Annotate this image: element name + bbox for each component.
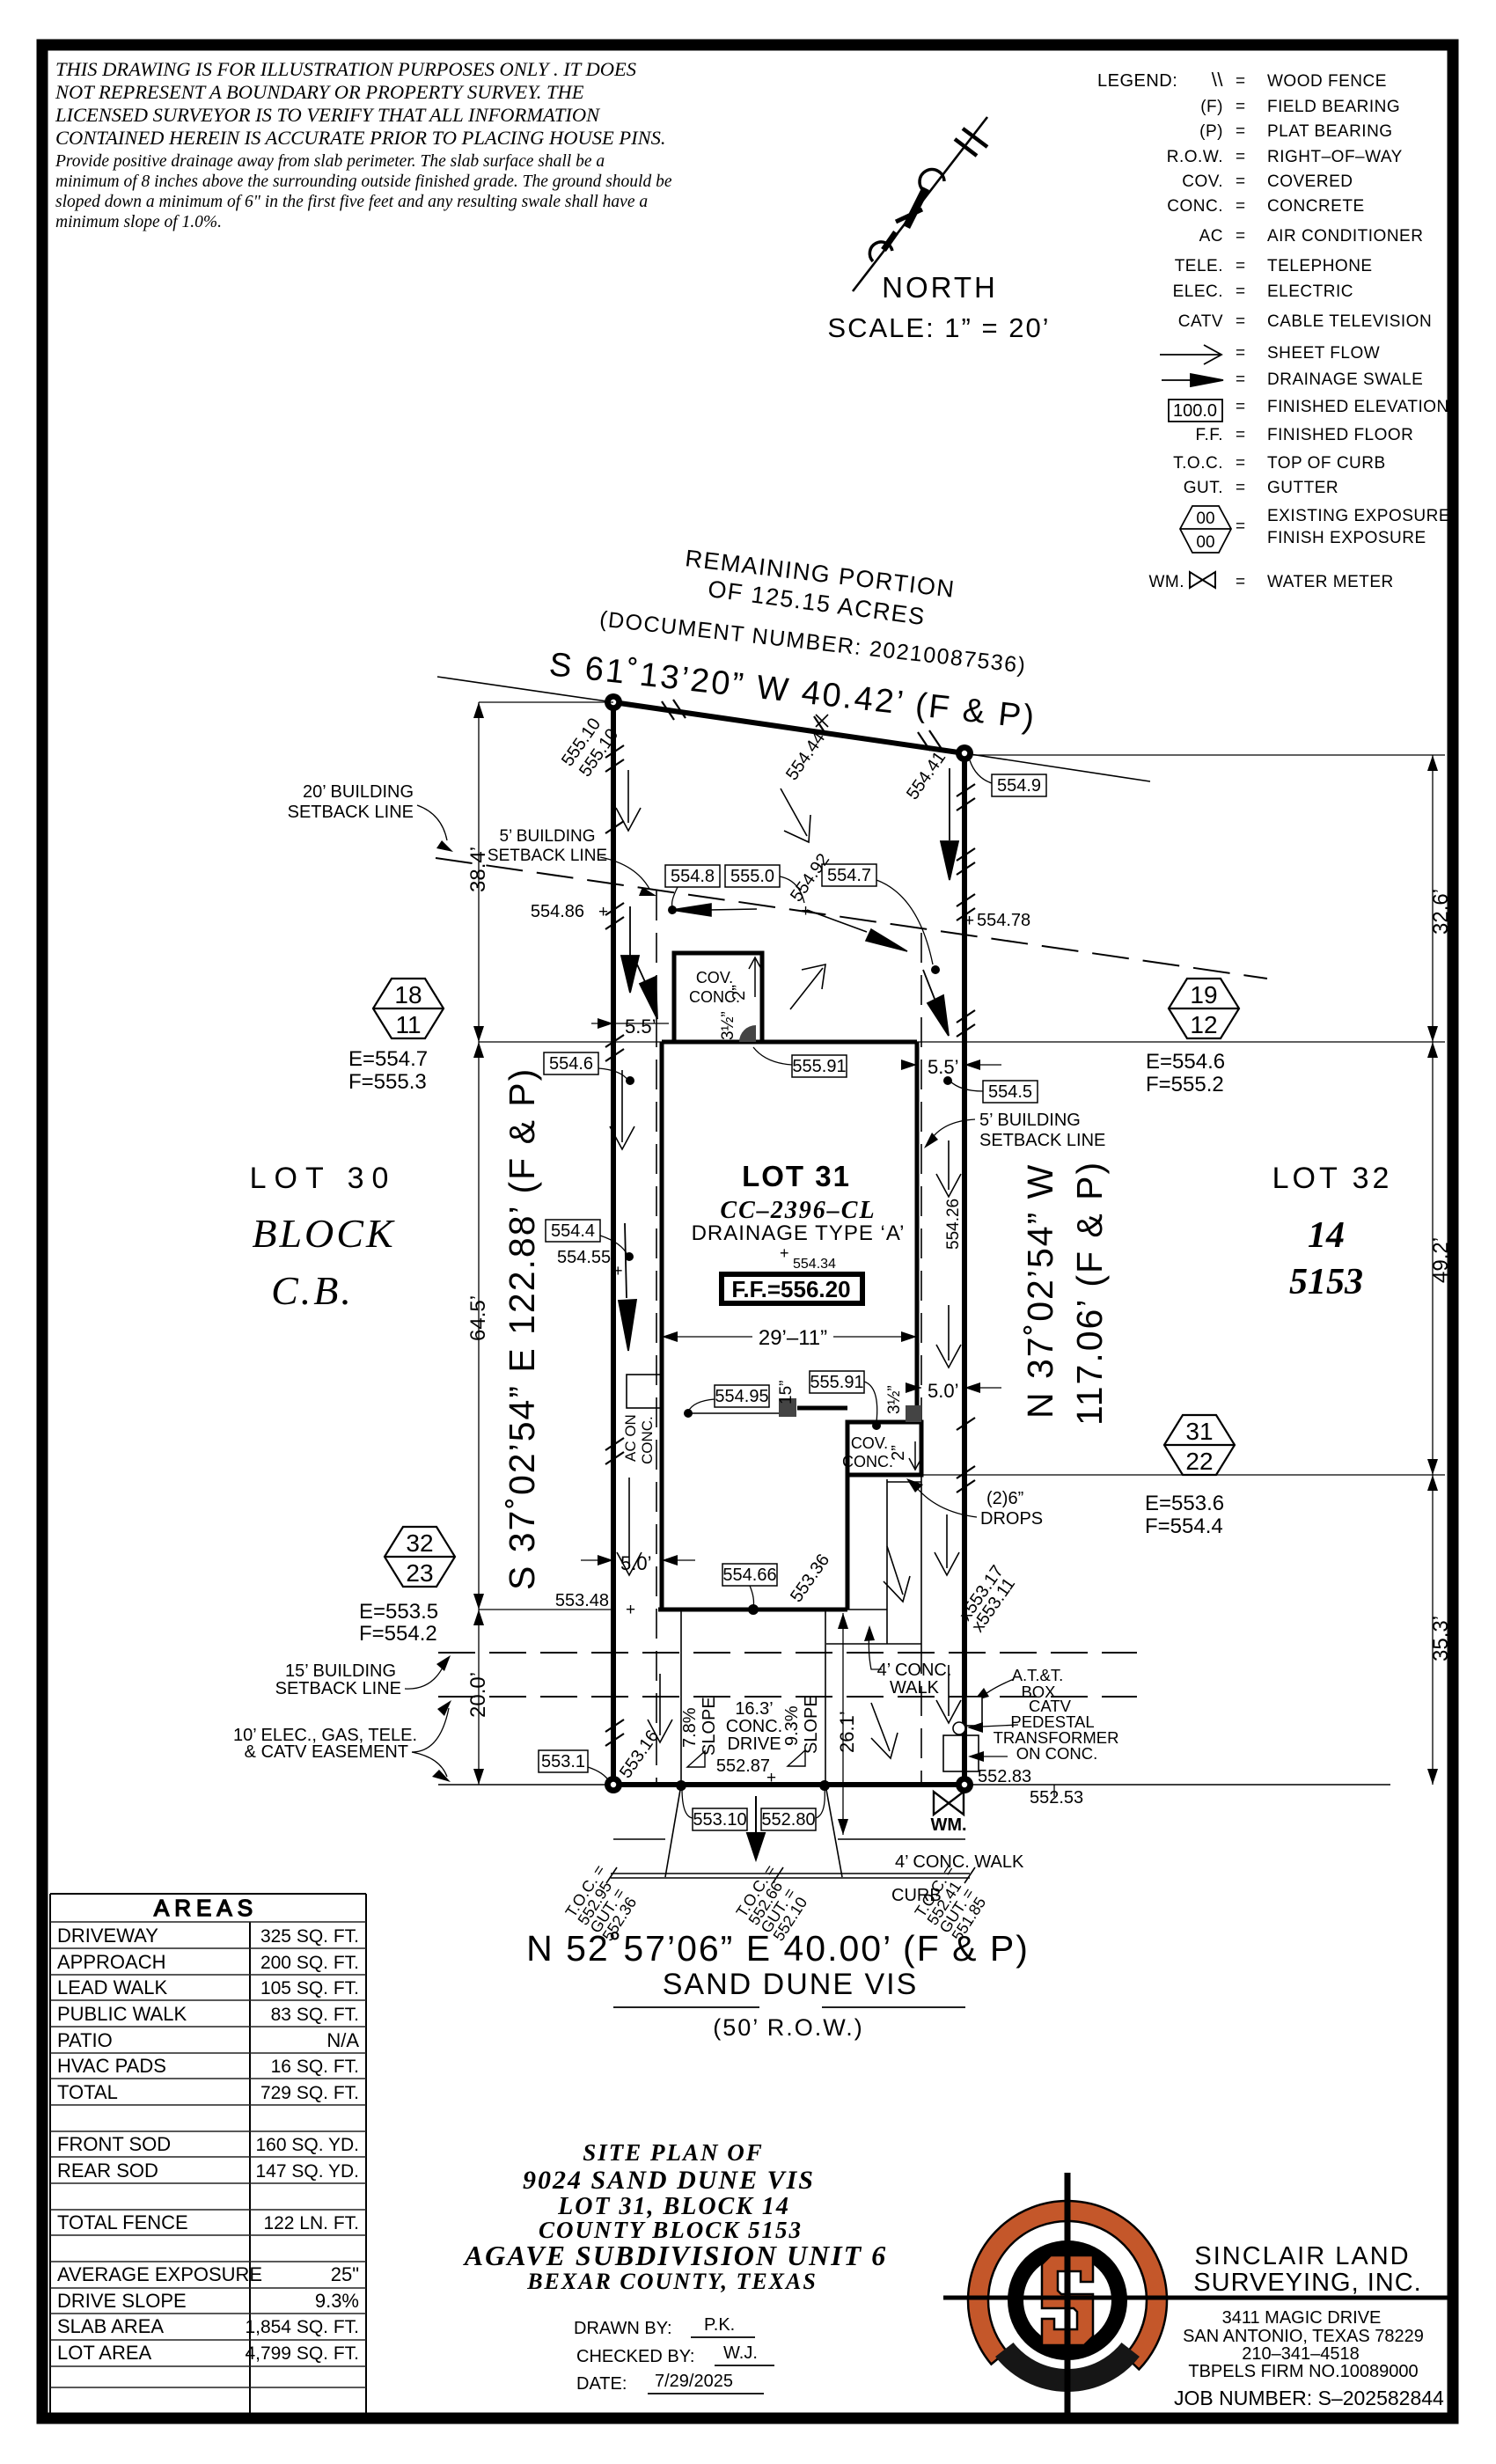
svg-text:=: = <box>1236 479 1246 497</box>
svg-text:BEXAR COUNTY, TEXAS: BEXAR COUNTY, TEXAS <box>526 2269 818 2294</box>
svg-text:3½”: 3½” <box>719 1011 737 1040</box>
svg-text:5.0’: 5.0’ <box>928 1380 958 1402</box>
svg-text:HVAC PADS: HVAC PADS <box>57 2055 166 2077</box>
svg-text:AC: AC <box>1199 227 1223 246</box>
svg-text:4’ CONC.: 4’ CONC. <box>877 1661 952 1680</box>
svg-text:555.0: 555.0 <box>730 867 774 886</box>
svg-text:E=553.5: E=553.5 <box>359 1600 438 1624</box>
svg-text:+: + <box>613 1262 623 1280</box>
svg-text:W.J.: W.J. <box>723 2343 758 2363</box>
svg-text:C.B.: C.B. <box>271 1268 354 1313</box>
svg-text:SETBACK LINE: SETBACK LINE <box>275 1679 401 1698</box>
svg-text:7.8%: 7.8% <box>680 1707 700 1748</box>
svg-text:TELE.: TELE. <box>1175 257 1223 275</box>
svg-text:CONCRETE: CONCRETE <box>1267 197 1365 216</box>
svg-text:32: 32 <box>406 1529 433 1557</box>
svg-text:552.53: 552.53 <box>1030 1788 1083 1808</box>
svg-text:554.34: 554.34 <box>793 1257 836 1272</box>
svg-text:E=554.7: E=554.7 <box>348 1047 428 1071</box>
svg-text:15”: 15” <box>777 1381 796 1404</box>
svg-text:16 SQ. FT.: 16 SQ. FT. <box>271 2057 359 2077</box>
svg-text:+: + <box>626 1601 635 1619</box>
svg-text:=: = <box>1236 426 1246 444</box>
svg-text:P.K.: P.K. <box>704 2315 735 2335</box>
svg-text:+: + <box>598 903 608 921</box>
svg-text:9.3%: 9.3% <box>782 1705 802 1746</box>
svg-text:N 52˚57’06” E 40.00’ (F &: N 52˚57’06” E 40.00’ (F & P) <box>526 1928 1030 1969</box>
svg-text:& CATV EASEMENT: & CATV EASEMENT <box>245 1742 408 1762</box>
svg-text:147 SQ. YD.: 147 SQ. YD. <box>255 2161 359 2182</box>
svg-text:minimum slope of 1.0%.: minimum slope of 1.0%. <box>55 213 222 231</box>
svg-text:SLOPE: SLOPE <box>700 1697 719 1756</box>
svg-text:554.86: 554.86 <box>531 902 584 921</box>
svg-text:F.F.: F.F. <box>1195 426 1223 444</box>
svg-text:=: = <box>1236 398 1246 416</box>
svg-text:=: = <box>1236 257 1246 275</box>
svg-text:LICENSED SURVEYOR IS TO VERIFY: LICENSED SURVEYOR IS TO VERIFY THAT ALL … <box>55 104 601 126</box>
svg-text:=: = <box>1236 227 1246 246</box>
svg-text:LOT 31: LOT 31 <box>742 1160 851 1192</box>
svg-text:19: 19 <box>1190 981 1217 1008</box>
svg-text:554.78: 554.78 <box>977 911 1030 930</box>
svg-text:554.9: 554.9 <box>997 776 1041 796</box>
svg-text:DRAINAGE SWALE: DRAINAGE SWALE <box>1267 370 1423 389</box>
svg-text:9024 SAND DUNE VIS: 9024 SAND DUNE VIS <box>523 2166 815 2195</box>
svg-text:SETBACK LINE: SETBACK LINE <box>979 1131 1105 1150</box>
svg-text:1,854 SQ. FT.: 1,854 SQ. FT. <box>245 2317 359 2337</box>
svg-text:ELEC.: ELEC. <box>1173 282 1223 301</box>
svg-text:AIR CONDITIONER: AIR CONDITIONER <box>1267 227 1423 246</box>
svg-text:ON CONC.: ON CONC. <box>1016 1744 1098 1763</box>
svg-text:REAR SOD: REAR SOD <box>57 2160 158 2182</box>
svg-text:PUBLIC WALK: PUBLIC WALK <box>57 2003 187 2025</box>
svg-text:FINISHED FLOOR: FINISHED FLOOR <box>1267 426 1413 444</box>
svg-text:WALK: WALK <box>890 1678 940 1698</box>
svg-text:PLAT BEARING: PLAT BEARING <box>1267 122 1393 141</box>
svg-text:THIS DRAWING IS FOR ILLUSTRATI: THIS DRAWING IS FOR ILLUSTRATION PURPOSE… <box>55 58 636 80</box>
svg-text:552.87: 552.87 <box>716 1756 770 1776</box>
svg-text:COV.: COV. <box>1182 172 1223 191</box>
svg-text:(50’ R.O.W.): (50’ R.O.W.) <box>713 2014 864 2041</box>
svg-text:TELEPHONE: TELEPHONE <box>1267 257 1373 275</box>
svg-text:F=554.4: F=554.4 <box>1145 1514 1223 1538</box>
svg-text:LOT AREA: LOT AREA <box>57 2342 152 2364</box>
svg-text:CABLE TELEVISION: CABLE TELEVISION <box>1267 312 1432 331</box>
svg-text:SINCLAIR LAND: SINCLAIR LAND <box>1194 2242 1410 2270</box>
svg-text:(2)6”: (2)6” <box>986 1489 1023 1508</box>
svg-text:CHECKED BY:: CHECKED BY: <box>576 2347 694 2366</box>
svg-text:105 SQ. FT.: 105 SQ. FT. <box>260 1978 359 1998</box>
svg-text:=: = <box>1236 282 1246 301</box>
svg-text:=: = <box>1236 98 1246 116</box>
svg-text:DRIVE: DRIVE <box>727 1734 781 1754</box>
svg-text:DRIVEWAY: DRIVEWAY <box>57 1925 158 1947</box>
svg-text:FINISH EXPOSURE: FINISH EXPOSURE <box>1267 529 1426 547</box>
svg-text:+: + <box>780 1244 789 1262</box>
svg-text:sloped down a minimum of 6" in: sloped down a minimum of 6" in the first… <box>55 193 648 211</box>
svg-text:325 SQ. FT.: 325 SQ. FT. <box>260 1926 359 1947</box>
svg-text:35.3’: 35.3’ <box>1429 1616 1453 1661</box>
svg-text:552.83: 552.83 <box>978 1767 1031 1786</box>
svg-text:FRONT SOD: FRONT SOD <box>57 2133 171 2155</box>
svg-text:32.6’: 32.6’ <box>1429 889 1453 935</box>
svg-text:EXISTING EXPOSURE: EXISTING EXPOSURE <box>1267 507 1450 525</box>
svg-text:F=554.2: F=554.2 <box>359 1622 437 1646</box>
svg-text:4,799 SQ. FT.: 4,799 SQ. FT. <box>245 2343 359 2364</box>
svg-text:LEAD WALK: LEAD WALK <box>57 1976 167 1998</box>
svg-text:555.91: 555.91 <box>792 1057 846 1076</box>
svg-text:3½”: 3½” <box>885 1385 904 1414</box>
svg-text:AVERAGE EXPOSURE: AVERAGE EXPOSURE <box>57 2263 262 2285</box>
svg-text:+: + <box>964 912 974 930</box>
svg-text:R.O.W.: R.O.W. <box>1167 148 1223 166</box>
svg-text:5.5’: 5.5’ <box>625 1016 656 1038</box>
svg-text:N/A: N/A <box>326 2029 359 2051</box>
svg-text:100.0: 100.0 <box>1173 401 1217 421</box>
svg-text:554.66: 554.66 <box>722 1566 776 1585</box>
svg-text:3411 MAGIC DRIVE: 3411 MAGIC DRIVE <box>1222 2308 1382 2328</box>
svg-text:=: = <box>1236 370 1246 389</box>
svg-text:SURVEYING, INC.: SURVEYING, INC. <box>1193 2269 1421 2297</box>
svg-text:26.1’: 26.1’ <box>836 1711 858 1753</box>
svg-text:(F): (F) <box>1200 98 1223 116</box>
svg-text:WATER METER: WATER METER <box>1267 573 1394 591</box>
svg-text:AGAVE SUBDIVISION UNIT 6: AGAVE SUBDIVISION UNIT 6 <box>463 2240 887 2271</box>
svg-text:TOP OF CURB: TOP OF CURB <box>1267 454 1386 473</box>
svg-text:WM.: WM. <box>1148 573 1184 591</box>
svg-text:COV.: COV. <box>851 1434 888 1452</box>
svg-text:N 37˚02’54” W: N 37˚02’54” W <box>1020 1163 1060 1419</box>
svg-text:LOT 32: LOT 32 <box>1272 1162 1393 1195</box>
svg-text:AREAS: AREAS <box>154 1895 258 1921</box>
svg-text:Provide positive drainage away: Provide positive drainage away from slab… <box>55 152 605 171</box>
svg-text:F=555.2: F=555.2 <box>1146 1073 1224 1096</box>
svg-text:DATE:: DATE: <box>576 2374 627 2394</box>
svg-text:49.2’: 49.2’ <box>1429 1237 1453 1283</box>
svg-text:minimum of 8 inches above the: minimum of 8 inches above the surroundin… <box>55 172 672 191</box>
svg-text:160 SQ. YD.: 160 SQ. YD. <box>255 2135 359 2155</box>
svg-text:555.91: 555.91 <box>810 1373 863 1392</box>
svg-text:E=554.6: E=554.6 <box>1146 1050 1225 1074</box>
svg-text:=: = <box>1236 148 1246 166</box>
svg-text:117.06’ (F & P): 117.06’ (F & P) <box>1069 1161 1110 1426</box>
svg-text:SITE PLAN OF: SITE PLAN OF <box>583 2139 764 2166</box>
svg-text:F.F.=556.20: F.F.=556.20 <box>731 1276 850 1302</box>
svg-text:SLAB AREA: SLAB AREA <box>57 2315 164 2337</box>
svg-text:554.4: 554.4 <box>551 1221 595 1241</box>
svg-text:=: = <box>1236 172 1246 191</box>
svg-text:AC ON: AC ON <box>622 1414 639 1462</box>
svg-text:553.1: 553.1 <box>541 1752 585 1771</box>
svg-text:4’ CONC. WALK: 4’ CONC. WALK <box>895 1852 1024 1872</box>
svg-text:=: = <box>1236 197 1246 216</box>
svg-text:64.5’: 64.5’ <box>466 1295 490 1341</box>
svg-text:122 LN. FT.: 122 LN. FT. <box>263 2213 359 2233</box>
svg-text:ELECTRIC: ELECTRIC <box>1267 282 1353 301</box>
svg-text:TBPELS FIRM NO.10089000: TBPELS FIRM NO.10089000 <box>1188 2362 1418 2381</box>
svg-text:(P): (P) <box>1199 122 1223 141</box>
svg-text:COVERED: COVERED <box>1267 172 1353 191</box>
svg-text:A.T.&T.: A.T.&T. <box>1012 1666 1064 1684</box>
svg-text:JOB NUMBER: S–202582844: JOB NUMBER: S–202582844 <box>1174 2387 1444 2409</box>
svg-text:DROPS: DROPS <box>980 1509 1043 1529</box>
svg-text:554.6: 554.6 <box>549 1054 593 1074</box>
svg-text:+: + <box>766 1769 776 1787</box>
svg-text:TOTAL FENCE: TOTAL FENCE <box>57 2211 188 2233</box>
svg-text:18: 18 <box>394 981 422 1008</box>
svg-text:=: = <box>1236 517 1246 536</box>
svg-text:5’ BUILDING: 5’ BUILDING <box>499 827 595 846</box>
svg-text:00: 00 <box>1196 510 1214 528</box>
svg-text:RIGHT–OF–WAY: RIGHT–OF–WAY <box>1267 148 1403 166</box>
svg-text:210–341–4518: 210–341–4518 <box>1242 2344 1359 2364</box>
svg-text:SETBACK LINE: SETBACK LINE <box>488 847 607 865</box>
svg-text:12: 12 <box>1190 1011 1217 1038</box>
svg-text:5’ BUILDING: 5’ BUILDING <box>979 1111 1081 1130</box>
svg-text:NOT REPRESENT A BOUNDARY OR PR: NOT REPRESENT A BOUNDARY OR PROPERTY SUR… <box>55 81 584 103</box>
svg-text:=: = <box>1236 72 1246 91</box>
svg-text:CONC.: CONC. <box>639 1416 656 1464</box>
svg-text:20.0’: 20.0’ <box>466 1672 490 1718</box>
svg-text:=: = <box>1236 344 1246 363</box>
svg-text:SLOPE: SLOPE <box>802 1695 821 1754</box>
svg-text:DRAINAGE TYPE ‘A’: DRAINAGE TYPE ‘A’ <box>692 1221 906 1245</box>
svg-text:SAND DUNE VIS: SAND DUNE VIS <box>663 1968 919 2001</box>
svg-text:20’ BUILDING: 20’ BUILDING <box>303 782 414 802</box>
svg-text:PATIO: PATIO <box>57 2029 113 2051</box>
svg-text:CONC.: CONC. <box>1167 197 1223 216</box>
svg-text:554.8: 554.8 <box>671 867 715 886</box>
svg-text:729 SQ. FT.: 729 SQ. FT. <box>260 2083 359 2103</box>
svg-text:CONTAINED HEREIN IS ACCURATE P: CONTAINED HEREIN IS ACCURATE PRIOR TO PL… <box>55 127 666 149</box>
svg-text:COV.: COV. <box>696 969 733 986</box>
svg-text:11: 11 <box>395 1011 421 1038</box>
svg-text:2”: 2” <box>730 985 749 1001</box>
svg-text:=: = <box>1236 454 1246 473</box>
svg-text:29’–11”: 29’–11” <box>759 1326 827 1350</box>
svg-text:T.O.C.: T.O.C. <box>1173 454 1223 473</box>
svg-text:=: = <box>1236 312 1246 331</box>
svg-text:GUT.: GUT. <box>1184 479 1223 497</box>
svg-text:CC–2396–CL: CC–2396–CL <box>720 1197 876 1224</box>
svg-text:LOT 30: LOT 30 <box>250 1162 397 1195</box>
svg-text:WOOD FENCE: WOOD FENCE <box>1267 72 1387 91</box>
svg-text:22: 22 <box>1185 1448 1213 1475</box>
svg-text:25": 25" <box>331 2263 359 2285</box>
svg-text:554.55: 554.55 <box>557 1248 611 1267</box>
svg-text:5.0’: 5.0’ <box>620 1552 651 1574</box>
svg-text:DRIVE SLOPE: DRIVE SLOPE <box>57 2290 187 2312</box>
svg-text:FINISHED ELEVATION: FINISHED ELEVATION <box>1267 398 1449 416</box>
svg-text:CONC.: CONC. <box>842 1453 893 1470</box>
svg-text:FIELD BEARING: FIELD BEARING <box>1267 98 1400 116</box>
svg-text:83 SQ. FT.: 83 SQ. FT. <box>271 2005 359 2025</box>
svg-text:15’ BUILDING: 15’ BUILDING <box>285 1661 396 1681</box>
svg-text:554.5: 554.5 <box>988 1082 1032 1102</box>
svg-text:554.95: 554.95 <box>715 1387 768 1406</box>
svg-text:\\: \\ <box>1212 69 1224 91</box>
svg-text:CATV: CATV <box>1178 312 1223 331</box>
svg-text:S 37˚02’54” E 122.88’ (F &: S 37˚02’54” E 122.88’ (F & P) <box>502 1067 542 1590</box>
svg-text:SHEET FLOW: SHEET FLOW <box>1267 344 1380 363</box>
svg-text:554.26: 554.26 <box>944 1199 963 1250</box>
svg-text:5153: 5153 <box>1289 1262 1363 1302</box>
svg-text:BLOCK: BLOCK <box>252 1211 395 1256</box>
svg-text:E=553.6: E=553.6 <box>1145 1492 1224 1515</box>
svg-text:9.3%: 9.3% <box>315 2290 359 2312</box>
svg-text:DRAWN BY:: DRAWN BY: <box>574 2319 672 2338</box>
svg-text:=: = <box>1236 573 1246 591</box>
svg-text:554.7: 554.7 <box>827 866 871 885</box>
svg-text:GUTTER: GUTTER <box>1267 479 1338 497</box>
svg-text:14: 14 <box>1308 1215 1345 1256</box>
svg-text:2”: 2” <box>889 1445 908 1461</box>
svg-text:16.3’: 16.3’ <box>735 1699 773 1719</box>
svg-text:200 SQ. FT.: 200 SQ. FT. <box>260 1953 359 1973</box>
svg-text:TOTAL: TOTAL <box>57 2081 118 2103</box>
svg-text:552.80: 552.80 <box>761 1810 815 1830</box>
svg-text:LEGEND:: LEGEND: <box>1097 71 1177 91</box>
svg-text:SAN ANTONIO, TEXAS 78229: SAN ANTONIO, TEXAS 78229 <box>1183 2327 1424 2346</box>
svg-text:=: = <box>1236 122 1246 141</box>
svg-text:NORTH: NORTH <box>882 271 998 304</box>
svg-text:31: 31 <box>1185 1418 1213 1445</box>
svg-text:WM.: WM. <box>930 1815 966 1835</box>
svg-text:23: 23 <box>406 1559 433 1587</box>
svg-text:APPROACH: APPROACH <box>57 1951 165 1973</box>
svg-text:5.5’: 5.5’ <box>928 1056 958 1078</box>
svg-text:553.10: 553.10 <box>693 1810 746 1830</box>
svg-text:SCALE: 1” = 20’: SCALE: 1” = 20’ <box>827 312 1050 343</box>
svg-text:SETBACK LINE: SETBACK LINE <box>288 803 414 822</box>
svg-text:F=555.3: F=555.3 <box>348 1070 427 1094</box>
svg-text:00: 00 <box>1196 533 1214 552</box>
svg-text:7/29/2025: 7/29/2025 <box>655 2372 733 2391</box>
svg-text:553.48: 553.48 <box>555 1591 609 1610</box>
svg-text:CONC.: CONC. <box>726 1717 782 1736</box>
